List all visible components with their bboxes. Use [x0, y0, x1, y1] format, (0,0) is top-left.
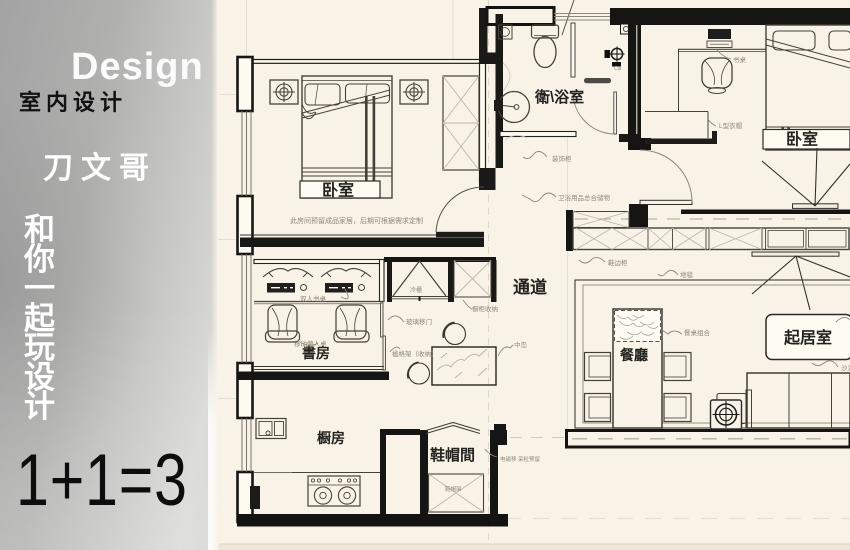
- svg-text:卧室: 卧室: [322, 181, 354, 200]
- svg-text:鞋边柜: 鞋边柜: [608, 258, 628, 267]
- svg-text:通道: 通道: [513, 277, 547, 297]
- svg-text:中岛: 中岛: [514, 340, 527, 349]
- svg-text:冷櫃: 冷櫃: [410, 286, 422, 294]
- svg-text:装饰柜: 装饰柜: [552, 154, 572, 163]
- svg-text:楹格架（收纳）: 楹格架（收纳）: [392, 349, 438, 358]
- svg-text:C⌀: C⌀: [614, 66, 622, 72]
- svg-text:玻璃移门: 玻璃移门: [406, 317, 432, 326]
- svg-text:鞋帽間: 鞋帽間: [430, 446, 475, 464]
- svg-text:L型衣帽: L型衣帽: [719, 121, 743, 130]
- svg-text:地毯: 地毯: [680, 270, 694, 279]
- svg-text:衛\浴室: 衛\浴室: [534, 88, 584, 106]
- svg-text:鞋帽架: 鞋帽架: [445, 485, 462, 493]
- svg-text:橱房: 橱房: [317, 430, 345, 446]
- svg-text:橱柜收纳: 橱柜收纳: [472, 304, 498, 313]
- svg-text:双人书桌: 双人书桌: [300, 294, 327, 303]
- svg-text:移动懒人桌: 移动懒人桌: [294, 339, 327, 348]
- svg-text:卫浴用品总合储物: 卫浴用品总合储物: [558, 193, 611, 202]
- svg-text:书桌: 书桌: [733, 55, 747, 64]
- svg-text:餐廳: 餐廳: [619, 347, 648, 363]
- svg-text:此房间预留成品家居，后期可根据需求定制: 此房间预留成品家居，后期可根据需求定制: [290, 216, 423, 225]
- svg-text:电磁移 采粒预留: 电磁移 采粒预留: [500, 455, 541, 463]
- svg-text:卧室: 卧室: [786, 130, 818, 149]
- svg-text:起居室: 起居室: [783, 328, 832, 347]
- svg-text:沙发: 沙发: [841, 363, 850, 372]
- svg-text:餐桌组合: 餐桌组合: [684, 328, 711, 337]
